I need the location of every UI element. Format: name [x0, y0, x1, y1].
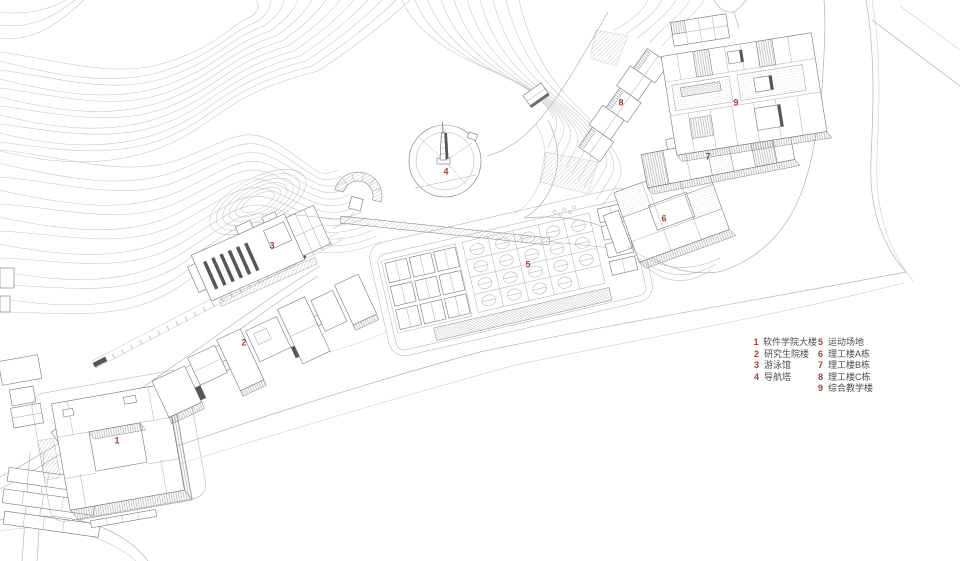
legend-label: 运动场地 — [828, 337, 864, 349]
legend-number: 7 — [817, 360, 824, 372]
map-marker-3: 3 — [269, 242, 274, 251]
legend-number: 4 — [753, 372, 760, 384]
navigation-tower-plaza — [409, 122, 481, 197]
legend-number: 5 — [817, 337, 824, 349]
legend-number: 8 — [817, 372, 824, 384]
legend-number: 1 — [753, 337, 759, 349]
legend-item-4: 4导航塔 — [753, 372, 817, 384]
legend-label: 理工楼C栋 — [828, 372, 871, 384]
legend-item-5: 5运动场地 — [817, 337, 881, 349]
legend-label: 理工楼B栋 — [828, 360, 870, 372]
map-marker-8: 8 — [618, 99, 623, 108]
legend-column-2: 5运动场地 6理工楼A栋 7理工楼B栋 8理工楼C栋 9综合教学楼 — [817, 337, 881, 395]
legend-item-7: 7理工楼B栋 — [817, 360, 881, 372]
map-marker-7: 7 — [705, 153, 710, 162]
legend-item-6: 6理工楼A栋 — [817, 349, 881, 361]
map-marker-5: 5 — [525, 261, 530, 270]
sports-ground — [367, 185, 656, 359]
legend-item-2: 2研究生院楼 — [753, 349, 817, 361]
map-marker-1: 1 — [114, 437, 119, 446]
legend-label: 综合教学楼 — [828, 383, 873, 395]
site-plan-drawing — [0, 0, 960, 561]
legend: 1软件学院大楼 2研究生院楼 3游泳馆 4导航塔 5运动场地 6理工楼A栋 7理… — [753, 337, 881, 395]
legend-label: 游泳馆 — [764, 360, 791, 372]
legend-item-1: 1软件学院大楼 — [753, 337, 817, 349]
legend-label: 导航塔 — [764, 372, 791, 384]
tennis-courts — [381, 244, 472, 333]
legend-label: 研究生院楼 — [764, 349, 809, 361]
map-marker-9: 9 — [733, 99, 738, 108]
amphitheater — [325, 167, 387, 239]
legend-label: 软件学院大楼 — [763, 337, 817, 349]
legend-item-3: 3游泳馆 — [753, 360, 817, 372]
legend-number: 3 — [753, 360, 760, 372]
legend-item-9: 9综合教学楼 — [817, 383, 881, 395]
building-2-graduate-school — [147, 272, 384, 428]
map-marker-2: 2 — [241, 339, 246, 348]
cluster-9-teaching — [661, 14, 832, 162]
map-marker-4: 4 — [443, 168, 448, 177]
legend-number: 2 — [753, 349, 760, 361]
legend-label: 理工楼A栋 — [828, 349, 870, 361]
legend-number: 9 — [817, 383, 824, 395]
legend-column-1: 1软件学院大楼 2研究生院楼 3游泳馆 4导航塔 — [753, 337, 817, 395]
map-marker-6: 6 — [661, 215, 666, 224]
legend-item-8: 8理工楼C栋 — [817, 372, 881, 384]
legend-number: 6 — [817, 349, 824, 361]
